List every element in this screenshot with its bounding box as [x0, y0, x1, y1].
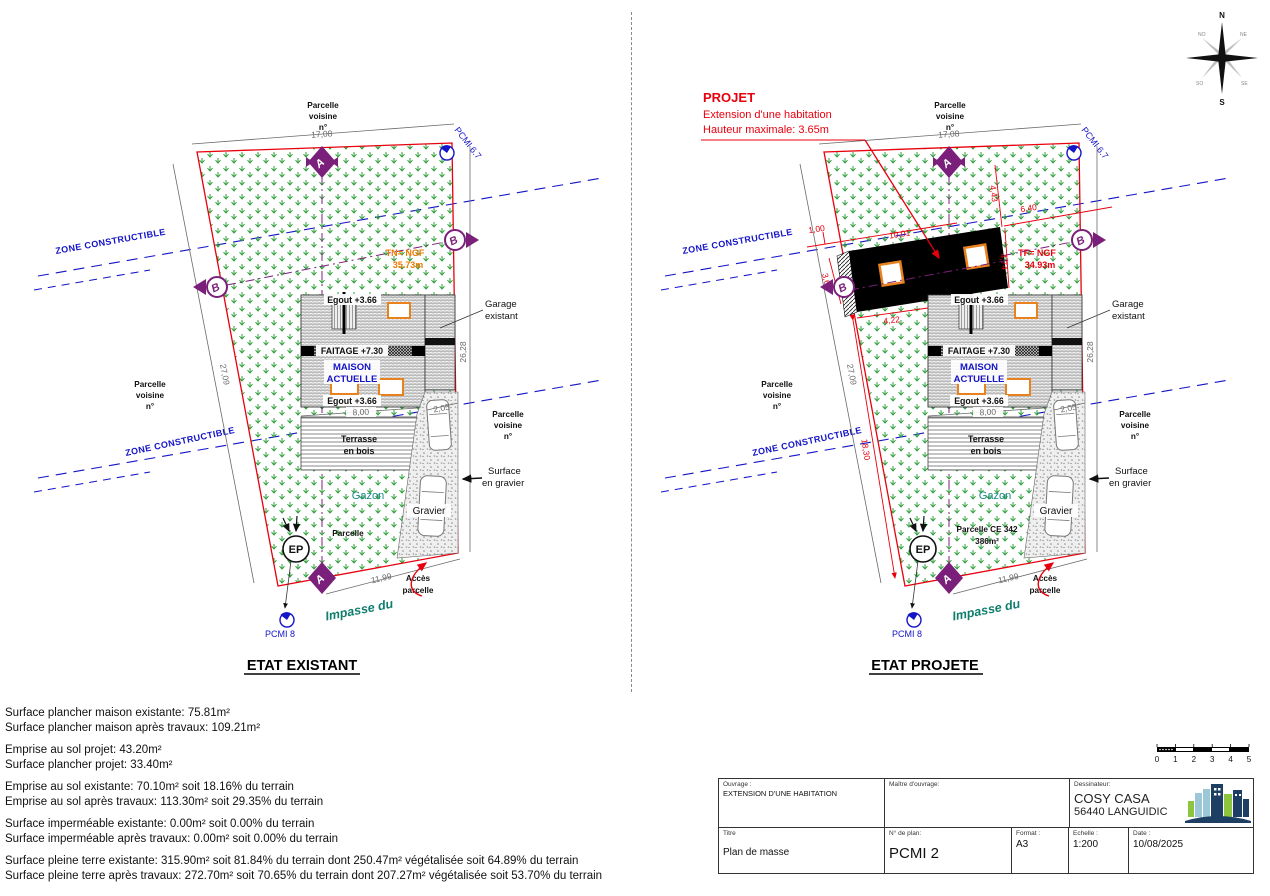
parcelle-label: Parcelle [332, 529, 364, 538]
pcmi-6-7-label: PCMI 6.7 [452, 125, 483, 161]
maison-label-1: MAISON [333, 362, 371, 373]
svg-text:Extension d'une habitation: Extension d'une habitation [703, 109, 832, 121]
format-value: A3 [1016, 839, 1064, 850]
gazon-label: Gazon [979, 490, 1011, 502]
svg-text:Gravier: Gravier [1040, 506, 1073, 517]
scale-tick-5: 5 [1247, 755, 1252, 764]
numero-plan-label: N° de plan: [889, 830, 1007, 837]
scale-tick-1: 1 [1173, 755, 1178, 764]
roof-window [1006, 379, 1030, 395]
gravier-callout: Surface en gravier [1090, 466, 1151, 489]
svg-text:parcelle: parcelle [1030, 586, 1061, 595]
svg-text:Accès: Accès [406, 574, 431, 583]
svg-text:PROJET: PROJET [703, 90, 755, 105]
note-line: Surface plancher maison après travaux: 1… [5, 721, 602, 736]
dim-26-28: 26,28 [458, 341, 468, 363]
svg-text:386m²: 386m² [975, 537, 999, 546]
ouvrage-label: Ouvrage : [723, 781, 880, 788]
svg-text:27,09: 27,09 [845, 363, 859, 386]
sheet-divider [631, 12, 632, 692]
egout-bottom-label: Egout +3.66 [327, 396, 377, 406]
dim-27-09: 27,09 [218, 363, 232, 386]
svg-text:en gravier: en gravier [482, 478, 524, 489]
svg-text:n°: n° [946, 123, 954, 132]
garage-callout: Garage existant [1112, 299, 1145, 322]
date-label: Date : [1133, 830, 1249, 837]
format-label: Format : [1016, 830, 1064, 837]
svg-text:18,30: 18,30 [859, 438, 872, 461]
terrasse-label-1: Terrasse [341, 434, 377, 444]
roof-window [388, 303, 410, 318]
svg-text:voisine: voisine [936, 112, 965, 121]
cosy-casa-logo [1185, 781, 1251, 825]
site-plan-projete: ZONE CONSTRUCTIBLE ZONE CONSTRUCTIBLE Eg… [657, 80, 1257, 720]
tn-ngf-label: TN= NGF [386, 248, 425, 258]
note-line: Emprise au sol après travaux: 113.30m² s… [5, 795, 602, 810]
site-plan-existant: ZONE CONSTRUCTIBLE ZONE CONSTRUCTIBLE Eg… [30, 80, 630, 720]
svg-text:Parcelle: Parcelle [307, 101, 339, 110]
svg-text:voisine: voisine [1121, 421, 1150, 430]
svg-text:26,28: 26,28 [1085, 341, 1095, 363]
tn-ngf-value: 35.73m [393, 260, 424, 270]
compass-rose-icon: NO NE SO SE N E S O [1184, 8, 1260, 112]
svg-text:PCMI 8: PCMI 8 [892, 629, 922, 639]
gravier-label: Gravier [413, 506, 446, 517]
echelle-label: Echelle : [1073, 830, 1124, 837]
maitre-douvrage-label: Maître d'ouvrage: [889, 781, 1065, 788]
dim-11-99: 11,99 [370, 571, 393, 585]
acces-callout: Accès parcelle [1030, 563, 1061, 596]
scale-tick-4: 4 [1228, 755, 1233, 764]
title-block: Ouvrage : EXTENSION D'UNE HABITATION Maî… [718, 778, 1254, 874]
roof-window [379, 379, 403, 395]
svg-text:EP: EP [916, 544, 931, 556]
compass-n: N [1219, 11, 1225, 20]
plan-title-projete: ETAT PROJETE [871, 658, 979, 674]
impasse-label: Impasse du [951, 597, 1022, 624]
note-line: Surface plancher maison existante: 75.81… [5, 706, 602, 721]
marker-b-right: B [1072, 230, 1106, 250]
gazon-label: Gazon [352, 490, 384, 502]
svg-text:Parcelle: Parcelle [1119, 410, 1151, 419]
maison-label-2: ACTUELLE [954, 374, 1005, 385]
impasse-label: Impasse du [324, 597, 395, 624]
terrace: Terrasse en bois [928, 417, 1044, 470]
svg-text:Parcelle: Parcelle [492, 410, 524, 419]
zone-constructible-label-top: ZONE CONSTRUCTIBLE [55, 227, 167, 256]
svg-text:Terrasse: Terrasse [968, 434, 1004, 444]
tf-ngf-value: 34.93m [1025, 260, 1056, 270]
egout-top-label: Egout +3.66 [327, 295, 377, 305]
svg-text:PCMI 6.7: PCMI 6.7 [1079, 125, 1110, 161]
zone-constructible-label-top: ZONE CONSTRUCTIBLE [682, 227, 794, 256]
note-line: Emprise au sol existante: 70.10m² soit 1… [5, 780, 602, 795]
note-line: Surface pleine terre après travaux: 272.… [5, 869, 602, 884]
svg-text:EP: EP [289, 544, 304, 556]
maison-label-1: MAISON [960, 362, 998, 373]
date-value: 10/08/2025 [1133, 839, 1249, 850]
note-line: Surface imperméable existante: 0.00m² so… [5, 817, 602, 832]
note-line: Surface plancher projet: 33.40m² [5, 758, 602, 773]
dim-8-00: 8,00 [352, 407, 369, 418]
titre-label: Titre [723, 830, 880, 837]
svg-text:Surface: Surface [488, 466, 521, 477]
pcmi-8-label: PCMI 8 [265, 629, 295, 639]
svg-text:Parcelle: Parcelle [761, 380, 793, 389]
svg-text:voisine: voisine [136, 391, 165, 400]
maison-label-2: ACTUELLE [327, 374, 378, 385]
egout-top-label: Egout +3.66 [954, 295, 1004, 305]
svg-text:existant: existant [1112, 311, 1145, 322]
svg-text:11,99: 11,99 [997, 571, 1020, 585]
pcmi-8-symbol: PCMI 8 [892, 612, 922, 639]
compass-s: S [1219, 98, 1225, 107]
svg-text:n°: n° [773, 402, 781, 411]
titre-value: Plan de masse [723, 847, 880, 858]
svg-text:NE: NE [1240, 32, 1248, 38]
gravier-callout: Surface en gravier [463, 466, 524, 489]
svg-text:Parcelle: Parcelle [134, 380, 166, 389]
faitage-label: FAITAGE +7.30 [321, 346, 383, 356]
plan-title-existant: ETAT EXISTANT [247, 658, 358, 674]
faitage-label: FAITAGE +7.30 [948, 346, 1010, 356]
garage-callout: Garage existant [485, 299, 518, 322]
svg-text:Garage: Garage [485, 299, 517, 310]
svg-text:en bois: en bois [971, 446, 1002, 456]
terrasse-label-2: en bois [344, 446, 375, 456]
svg-text:SO: SO [1196, 81, 1203, 87]
marker-b-right: B [445, 230, 479, 250]
roof-window [1015, 303, 1037, 318]
svg-text:voisine: voisine [494, 421, 523, 430]
note-line: Surface pleine terre existante: 315.90m²… [5, 854, 602, 869]
note-line: Surface imperméable après travaux: 0.00m… [5, 832, 602, 847]
svg-text:Accès: Accès [1033, 574, 1058, 583]
svg-text:Surface: Surface [1115, 466, 1148, 477]
svg-text:parcelle: parcelle [403, 586, 434, 595]
note-line: Emprise au sol projet: 43.20m² [5, 743, 602, 758]
svg-text:voisine: voisine [309, 112, 338, 121]
scale-tick-0: 0 [1155, 755, 1160, 764]
echelle-value: 1:200 [1073, 839, 1124, 850]
svg-text:en gravier: en gravier [1109, 478, 1151, 489]
svg-text:n°: n° [504, 432, 512, 441]
svg-text:n°: n° [319, 123, 327, 132]
svg-text:n°: n° [146, 402, 154, 411]
scale-bar: 0 1 2 3 4 5 [1150, 740, 1260, 768]
svg-text:Parcelle: Parcelle [934, 101, 966, 110]
pcmi-8-symbol: PCMI 8 [265, 612, 295, 639]
svg-text:n°: n° [1131, 432, 1139, 441]
svg-text:SE: SE [1241, 81, 1248, 87]
surface-notes: Surface plancher maison existante: 75.81… [5, 706, 602, 891]
svg-text:NO: NO [1198, 32, 1206, 38]
ouvrage-value: EXTENSION D'UNE HABITATION [723, 789, 880, 798]
plan-de-masse-sheet: ZONE CONSTRUCTIBLE ZONE CONSTRUCTIBLE Eg… [0, 0, 1270, 896]
svg-text:8,00: 8,00 [979, 407, 996, 418]
svg-text:Parcelle CE 342: Parcelle CE 342 [957, 525, 1018, 534]
scale-tick-2: 2 [1192, 755, 1197, 764]
acces-callout: Accès parcelle [403, 563, 434, 596]
svg-text:existant: existant [485, 311, 518, 322]
scale-tick-3: 3 [1210, 755, 1215, 764]
svg-text:Garage: Garage [1112, 299, 1144, 310]
svg-text:4,74: 4,74 [998, 253, 1010, 271]
svg-text:voisine: voisine [763, 391, 792, 400]
numero-plan-value: PCMI 2 [889, 845, 1007, 862]
tf-ngf-label: TF= NGF [1018, 248, 1056, 258]
svg-text:4,22: 4,22 [883, 314, 901, 326]
svg-text:Hauteur maximale: 3.65m: Hauteur maximale: 3.65m [703, 124, 829, 136]
terrace: Terrasse en bois [301, 417, 417, 470]
egout-bottom-label: Egout +3.66 [954, 396, 1004, 406]
